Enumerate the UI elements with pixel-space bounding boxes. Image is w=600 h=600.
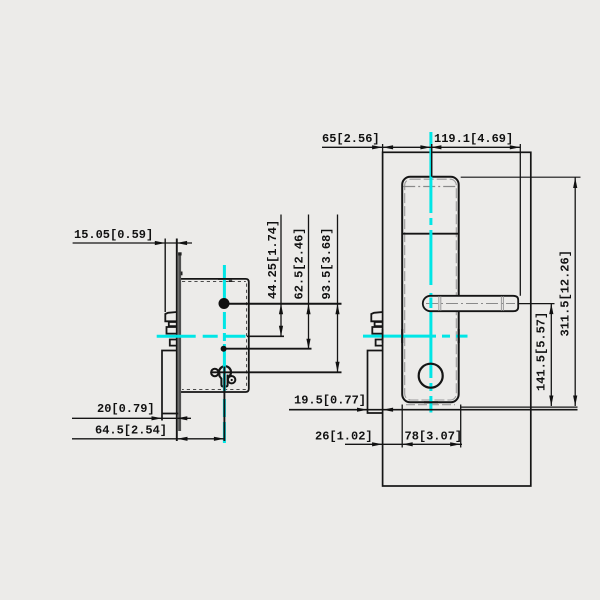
svg-text:93.5[3.68]: 93.5[3.68] — [320, 227, 334, 299]
svg-text:119.1[4.69]: 119.1[4.69] — [434, 132, 513, 146]
svg-text:44.25[1.74]: 44.25[1.74] — [266, 220, 280, 299]
svg-text:64.5[2.54]: 64.5[2.54] — [95, 424, 167, 438]
svg-text:65[2.56]: 65[2.56] — [322, 132, 380, 146]
svg-text:311.5[12.26]: 311.5[12.26] — [558, 250, 572, 336]
svg-text:141.5[5.57]: 141.5[5.57] — [535, 312, 549, 391]
svg-text:26[1.02]: 26[1.02] — [315, 430, 373, 444]
svg-text:15.05[0.59]: 15.05[0.59] — [74, 228, 153, 242]
svg-text:62.5[2.46]: 62.5[2.46] — [293, 227, 307, 299]
svg-text:19.5[0.77]: 19.5[0.77] — [294, 394, 366, 408]
svg-text:78[3.07]: 78[3.07] — [405, 430, 463, 444]
svg-text:20[0.79]: 20[0.79] — [97, 402, 155, 416]
